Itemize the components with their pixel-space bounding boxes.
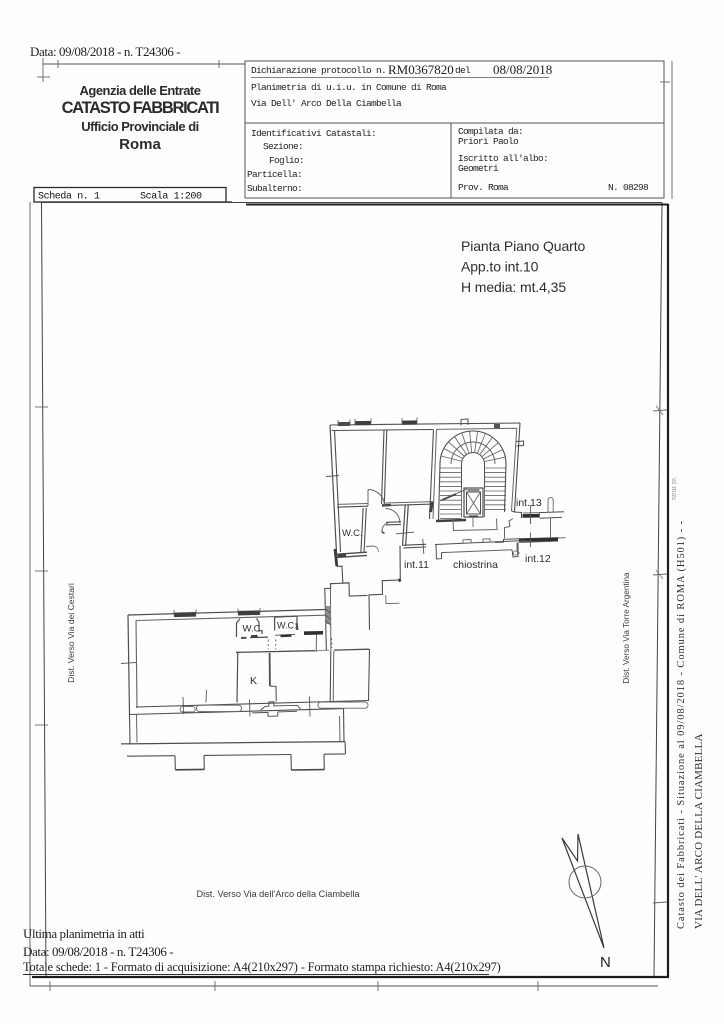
svg-text:Agenzia delle Entrate: Agenzia delle Entrate — [80, 83, 201, 98]
svg-text:Data: 09/08/2018 - n. T24306 -: Data: 09/08/2018 - n. T24306 - — [23, 944, 173, 959]
svg-text:App.to int.10: App.to int.10 — [461, 259, 539, 275]
svg-text:Priori Paolo: Priori Paolo — [458, 136, 519, 147]
svg-text:Scala 1:200: Scala 1:200 — [140, 191, 202, 203]
svg-text:Particella:: Particella: — [247, 169, 302, 180]
svg-text:VIA DELL' ARCO DELLA CIAMBELLA: VIA DELL' ARCO DELLA CIAMBELLA — [693, 733, 705, 929]
svg-text:int.11: int.11 — [404, 559, 429, 571]
svg-text:RM0367820: RM0367820 — [388, 62, 454, 77]
svg-text:K: K — [250, 675, 257, 687]
svg-text:int.12: int.12 — [525, 553, 551, 565]
svg-text:Pianta Piano Quarto: Pianta Piano Quarto — [461, 238, 585, 254]
svg-text:ui mau: ui mau — [670, 478, 679, 500]
svg-text:W.C.: W.C. — [243, 624, 264, 635]
svg-text:Ufficio Provinciale di: Ufficio Provinciale di — [81, 119, 199, 134]
svg-text:08/08/2018: 08/08/2018 — [493, 62, 552, 77]
svg-text:N. 08298: N. 08298 — [608, 182, 649, 193]
svg-text:CATASTO FABBRICATI: CATASTO FABBRICATI — [62, 99, 220, 117]
svg-text:Data: 09/08/2018 - n. T24306 -: Data: 09/08/2018 - n. T24306 - — [30, 44, 180, 59]
svg-text:Dist. Verso Via dei Cestari: Dist. Verso Via dei Cestari — [66, 583, 76, 683]
svg-text:Planimetria di u.i.u. in Comun: Planimetria di u.i.u. in Comune di Roma — [251, 82, 447, 93]
svg-text:Catasto dei Fabbricati - Situa: Catasto dei Fabbricati - Situazione al 0… — [676, 520, 687, 929]
svg-text:H media: mt.4,35: H media: mt.4,35 — [461, 279, 566, 295]
svg-text:Subalterno:: Subalterno: — [247, 183, 302, 194]
svg-text:Totale schede: 1 - Formato di: Totale schede: 1 - Formato di acquisizio… — [23, 960, 501, 974]
svg-text:Foglio:: Foglio: — [269, 155, 304, 166]
svg-text:Scheda n. 1: Scheda n. 1 — [38, 191, 100, 203]
svg-text:Prov. Roma: Prov. Roma — [458, 182, 509, 193]
svg-text:Ultima planimetria in atti: Ultima planimetria in atti — [23, 926, 145, 941]
svg-text:Dichiarazione protocollo n.: Dichiarazione protocollo n. — [251, 65, 386, 76]
svg-text:Sezione:: Sezione: — [263, 141, 303, 152]
svg-text:chiostrina: chiostrina — [453, 559, 498, 571]
svg-text:W.C.: W.C. — [277, 621, 297, 631]
svg-text:del: del — [455, 65, 471, 76]
svg-text:Via Dell' Arco Della Ciambella: Via Dell' Arco Della Ciambella — [251, 98, 402, 109]
svg-text:Identificativi Catastali:: Identificativi Catastali: — [251, 128, 376, 139]
svg-text:N: N — [600, 954, 611, 971]
svg-text:W.C.: W.C. — [342, 528, 363, 539]
svg-text:Dist. Verso Via Torre Argentin: Dist. Verso Via Torre Argentina — [622, 572, 631, 684]
svg-text:int.13: int.13 — [516, 497, 542, 509]
svg-text:Roma: Roma — [119, 136, 161, 153]
svg-text:Geometri: Geometri — [458, 163, 499, 174]
svg-text:Dist. Verso Via dell'Arco dell: Dist. Verso Via dell'Arco della Ciambell… — [197, 889, 361, 899]
